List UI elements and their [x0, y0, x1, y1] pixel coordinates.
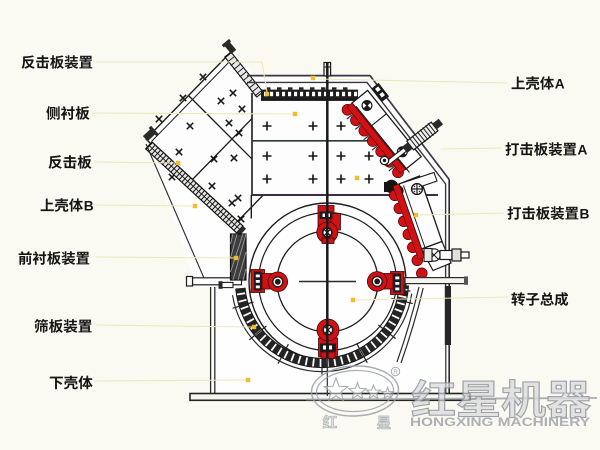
- svg-text:HONGXING MACHINERY: HONGXING MACHINERY: [410, 417, 590, 429]
- svg-text:R: R: [393, 370, 398, 376]
- svg-text:B: B: [580, 207, 590, 222]
- svg-text:B: B: [84, 199, 94, 214]
- svg-text:A: A: [555, 77, 565, 92]
- svg-text:A: A: [578, 143, 588, 158]
